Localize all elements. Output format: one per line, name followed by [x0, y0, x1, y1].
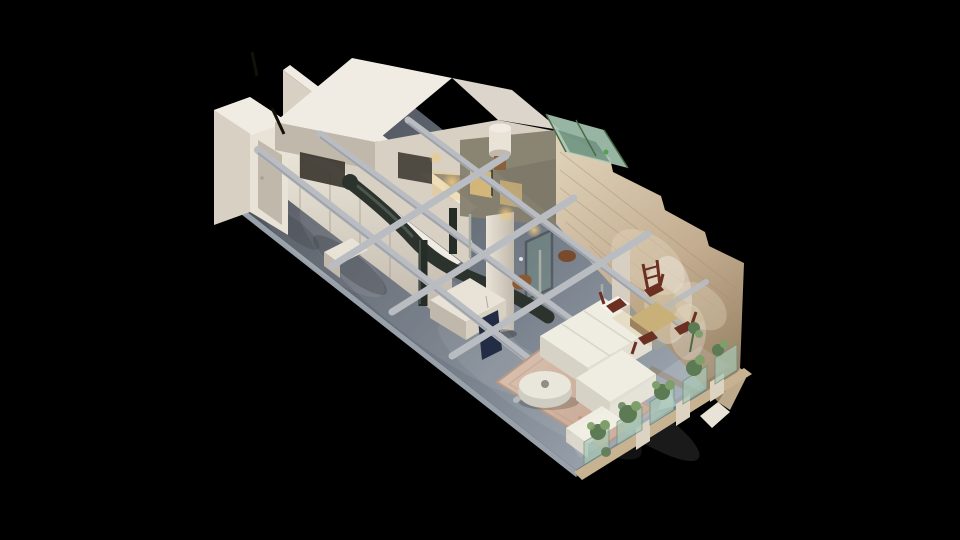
3d-viewport[interactable]	[0, 0, 960, 540]
plant	[618, 402, 626, 410]
plant	[631, 401, 641, 411]
ottoman-tray	[541, 380, 549, 388]
skylight-accent	[604, 150, 609, 155]
plant	[695, 355, 705, 365]
light-glow	[429, 151, 443, 165]
heater-top	[489, 124, 511, 133]
plant	[587, 422, 595, 430]
plant	[601, 447, 611, 457]
light-dot	[519, 257, 523, 261]
plant	[665, 380, 675, 390]
plant	[695, 330, 703, 338]
door-handle	[260, 176, 263, 179]
plant	[600, 420, 610, 430]
plant	[720, 340, 728, 348]
dollhouse-render	[0, 0, 960, 540]
armchair	[558, 250, 576, 262]
duct-elbow	[342, 174, 358, 190]
plant	[652, 381, 660, 389]
light-glow	[497, 205, 515, 223]
